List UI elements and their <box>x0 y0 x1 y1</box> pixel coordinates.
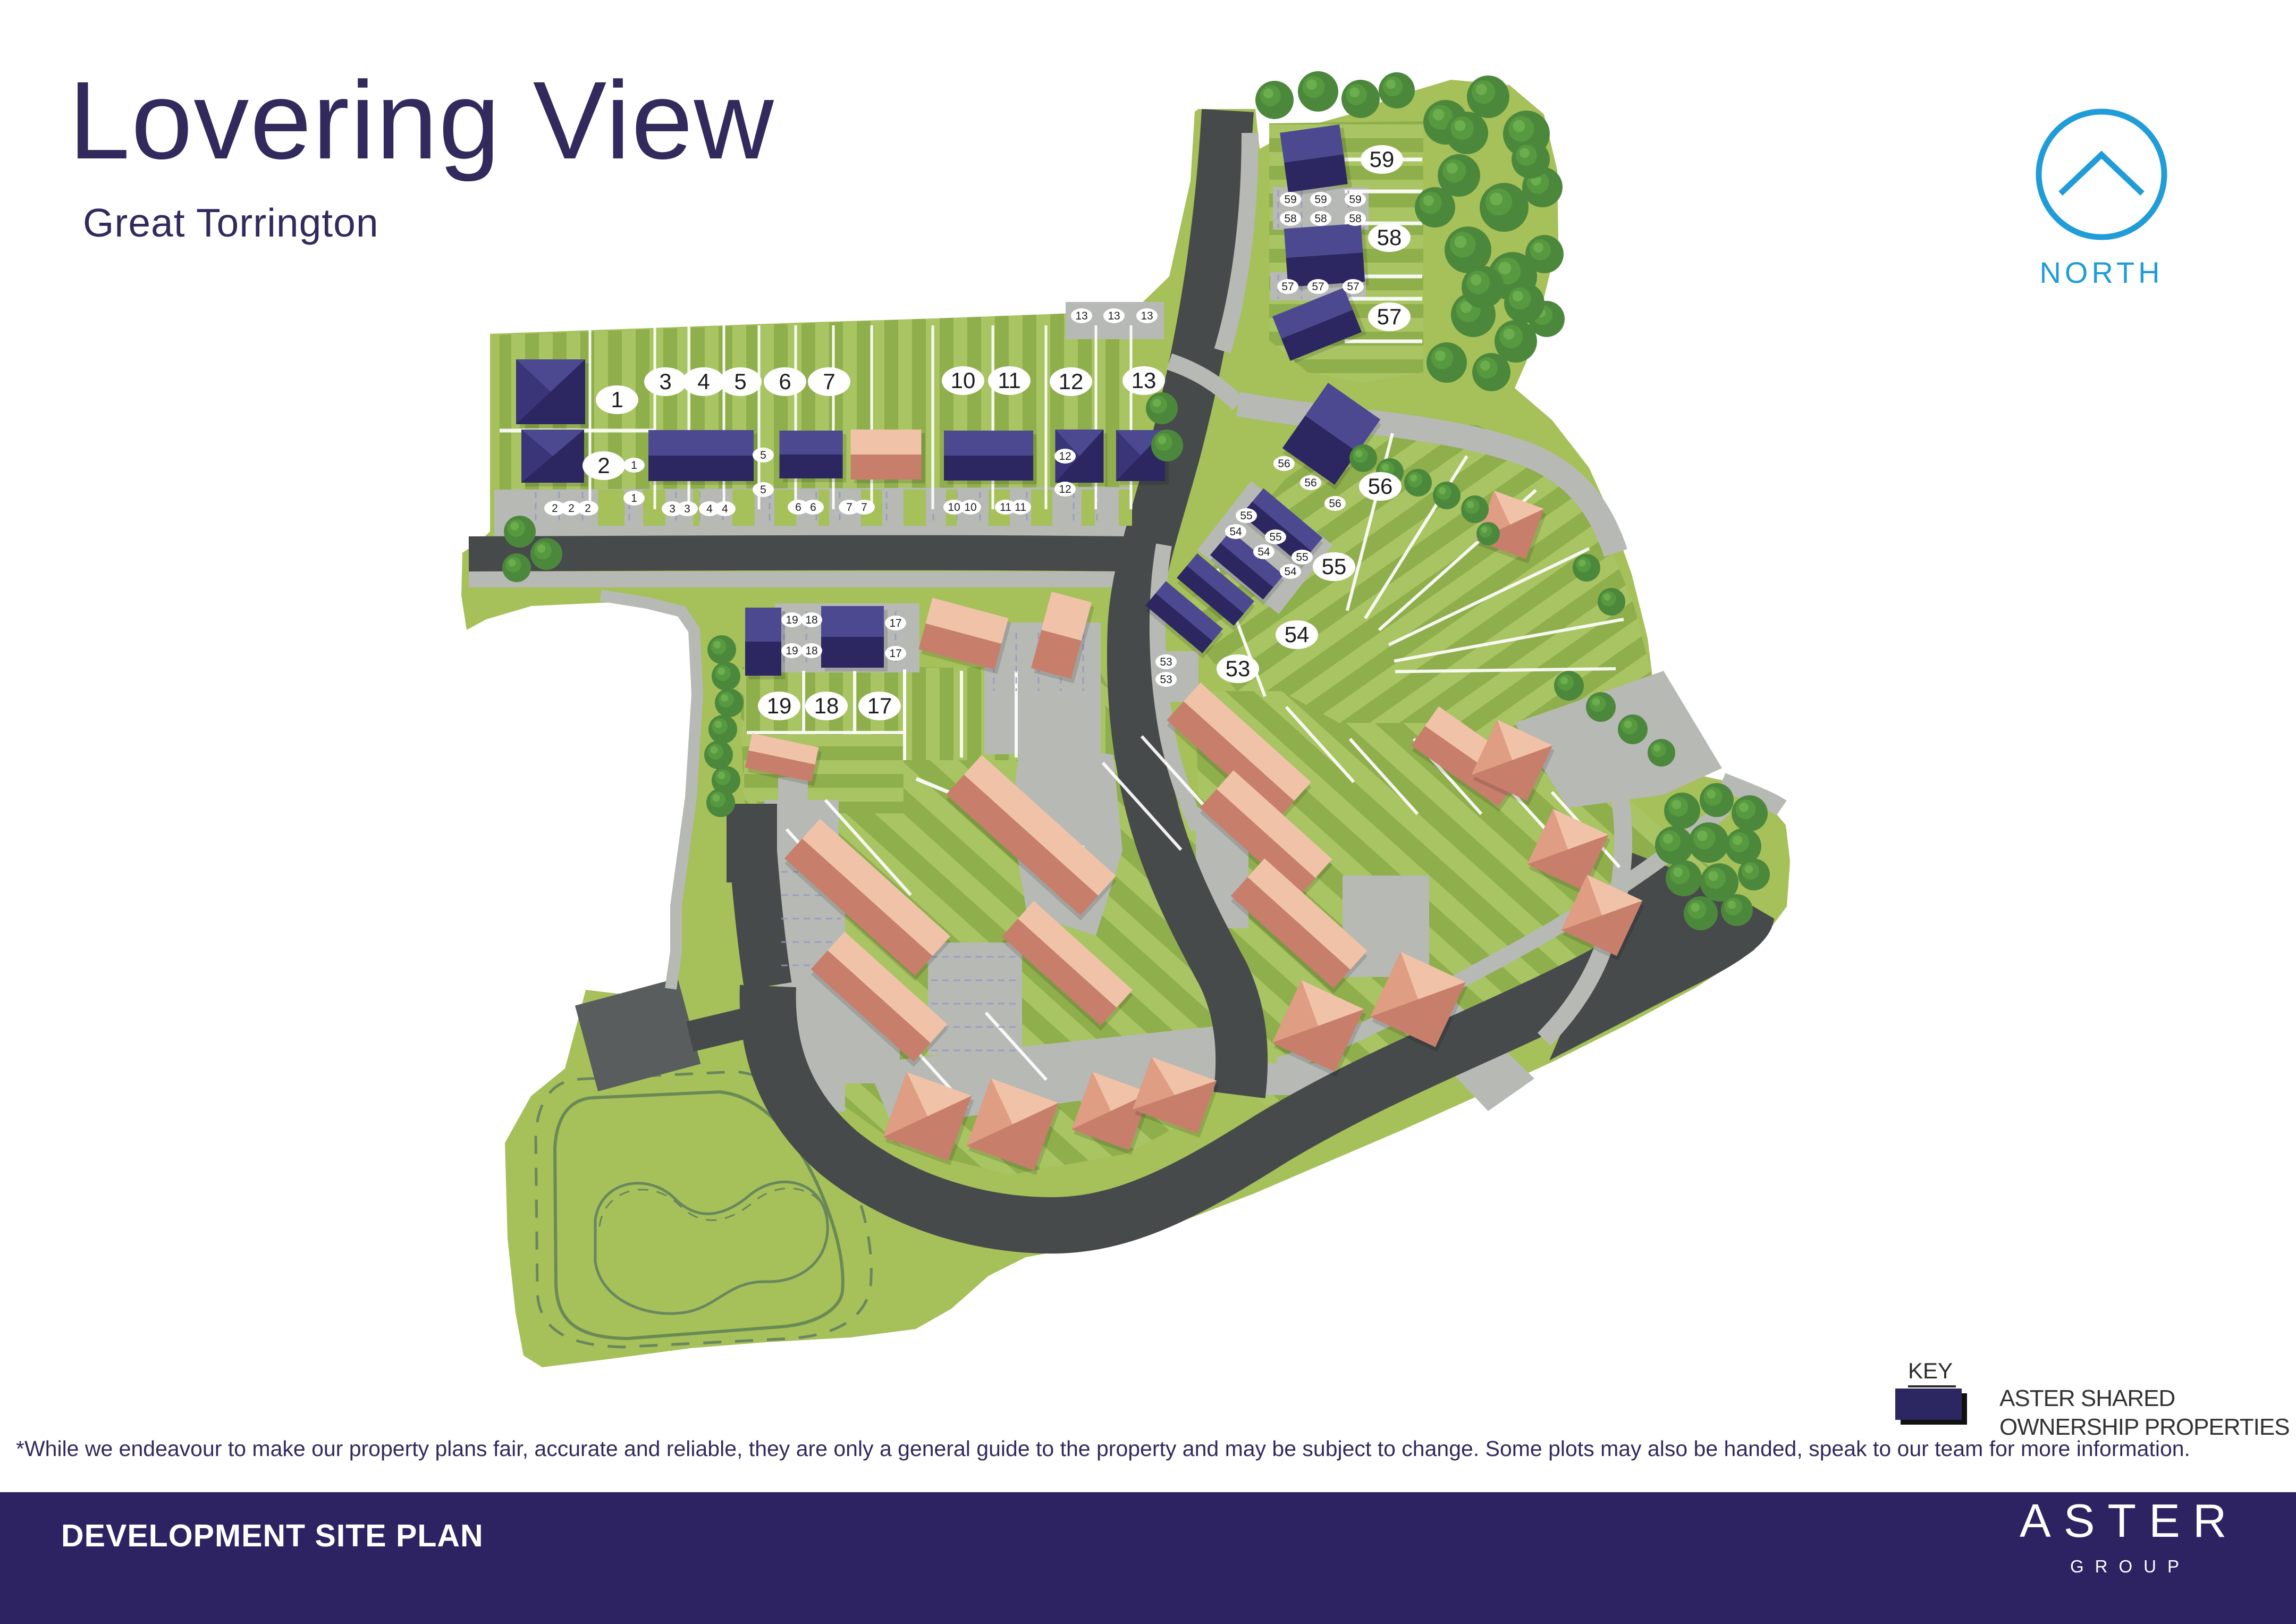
svg-text:13: 13 <box>1132 368 1157 393</box>
svg-text:54: 54 <box>1257 546 1270 558</box>
svg-text:59: 59 <box>1349 193 1361 206</box>
svg-text:3: 3 <box>659 369 671 394</box>
svg-text:7: 7 <box>861 501 867 514</box>
svg-text:18: 18 <box>805 645 817 657</box>
svg-text:58: 58 <box>1349 213 1361 225</box>
svg-text:57: 57 <box>1312 281 1324 293</box>
svg-text:17: 17 <box>867 693 892 718</box>
svg-text:12: 12 <box>1059 483 1071 495</box>
svg-text:2: 2 <box>585 502 591 515</box>
svg-text:1: 1 <box>631 459 637 472</box>
svg-text:17: 17 <box>889 647 901 660</box>
svg-text:53: 53 <box>1160 674 1172 686</box>
svg-text:1: 1 <box>611 387 623 412</box>
svg-text:54: 54 <box>1229 526 1242 538</box>
svg-text:11: 11 <box>1015 501 1026 514</box>
svg-text:1: 1 <box>631 492 637 504</box>
svg-text:13: 13 <box>1075 310 1087 322</box>
svg-text:58: 58 <box>1314 213 1327 225</box>
svg-text:2: 2 <box>552 502 558 515</box>
svg-text:55: 55 <box>1269 531 1281 543</box>
svg-text:54: 54 <box>1284 566 1297 578</box>
svg-text:56: 56 <box>1278 458 1290 470</box>
svg-text:19: 19 <box>786 614 798 626</box>
svg-text:58: 58 <box>1284 213 1296 225</box>
svg-text:11: 11 <box>1000 501 1011 514</box>
svg-text:4: 4 <box>697 369 710 394</box>
svg-text:53: 53 <box>1160 656 1172 668</box>
svg-text:3: 3 <box>684 503 690 515</box>
svg-text:55: 55 <box>1296 551 1308 563</box>
svg-text:57: 57 <box>1347 281 1359 293</box>
svg-text:6: 6 <box>795 501 801 514</box>
svg-text:17: 17 <box>889 617 901 629</box>
svg-text:5: 5 <box>760 449 766 461</box>
svg-text:12: 12 <box>1059 450 1071 462</box>
svg-text:18: 18 <box>814 693 839 718</box>
svg-text:5: 5 <box>734 369 746 394</box>
svg-text:11: 11 <box>998 368 1021 393</box>
svg-text:56: 56 <box>1304 477 1316 489</box>
svg-text:4: 4 <box>722 503 728 515</box>
svg-text:7: 7 <box>823 369 835 394</box>
svg-text:12: 12 <box>1059 369 1084 394</box>
svg-text:53: 53 <box>1226 656 1251 681</box>
svg-text:2: 2 <box>597 453 610 478</box>
svg-text:2: 2 <box>568 502 575 515</box>
svg-text:18: 18 <box>805 614 817 626</box>
svg-text:19: 19 <box>767 693 792 718</box>
svg-text:6: 6 <box>810 501 816 514</box>
svg-text:19: 19 <box>786 645 798 657</box>
svg-text:5: 5 <box>760 484 766 496</box>
svg-text:13: 13 <box>1108 310 1120 322</box>
svg-text:3: 3 <box>669 503 676 515</box>
svg-text:54: 54 <box>1285 622 1310 647</box>
svg-text:59: 59 <box>1284 193 1296 206</box>
svg-text:6: 6 <box>779 369 791 394</box>
svg-text:57: 57 <box>1281 281 1294 293</box>
svg-text:55: 55 <box>1240 510 1252 522</box>
svg-text:59: 59 <box>1370 147 1395 172</box>
svg-text:10: 10 <box>948 501 960 514</box>
svg-text:13: 13 <box>1141 310 1153 322</box>
svg-text:59: 59 <box>1314 193 1327 206</box>
svg-text:10: 10 <box>964 501 976 514</box>
svg-text:56: 56 <box>1329 498 1341 510</box>
svg-text:4: 4 <box>706 503 713 515</box>
svg-text:56: 56 <box>1368 474 1393 499</box>
svg-text:10: 10 <box>951 368 976 393</box>
svg-text:55: 55 <box>1322 554 1347 579</box>
svg-text:7: 7 <box>846 501 852 514</box>
svg-text:57: 57 <box>1377 304 1402 329</box>
svg-text:58: 58 <box>1377 225 1402 250</box>
